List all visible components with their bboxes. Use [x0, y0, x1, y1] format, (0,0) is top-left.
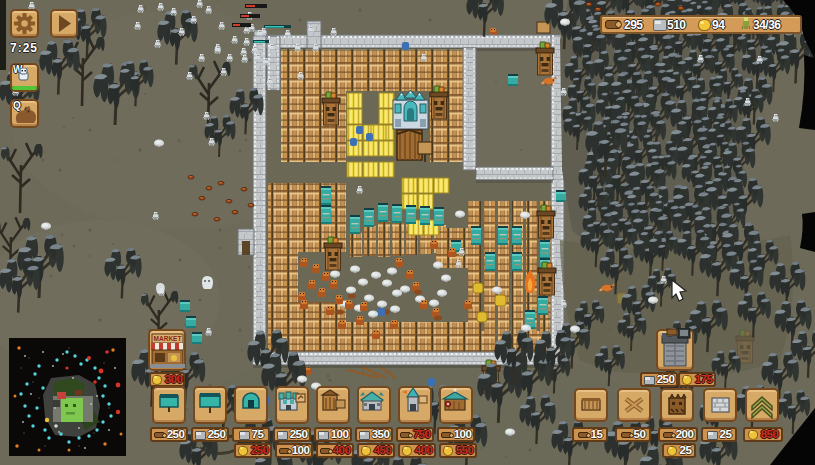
svg-text:MARKET: MARKET [154, 335, 182, 342]
